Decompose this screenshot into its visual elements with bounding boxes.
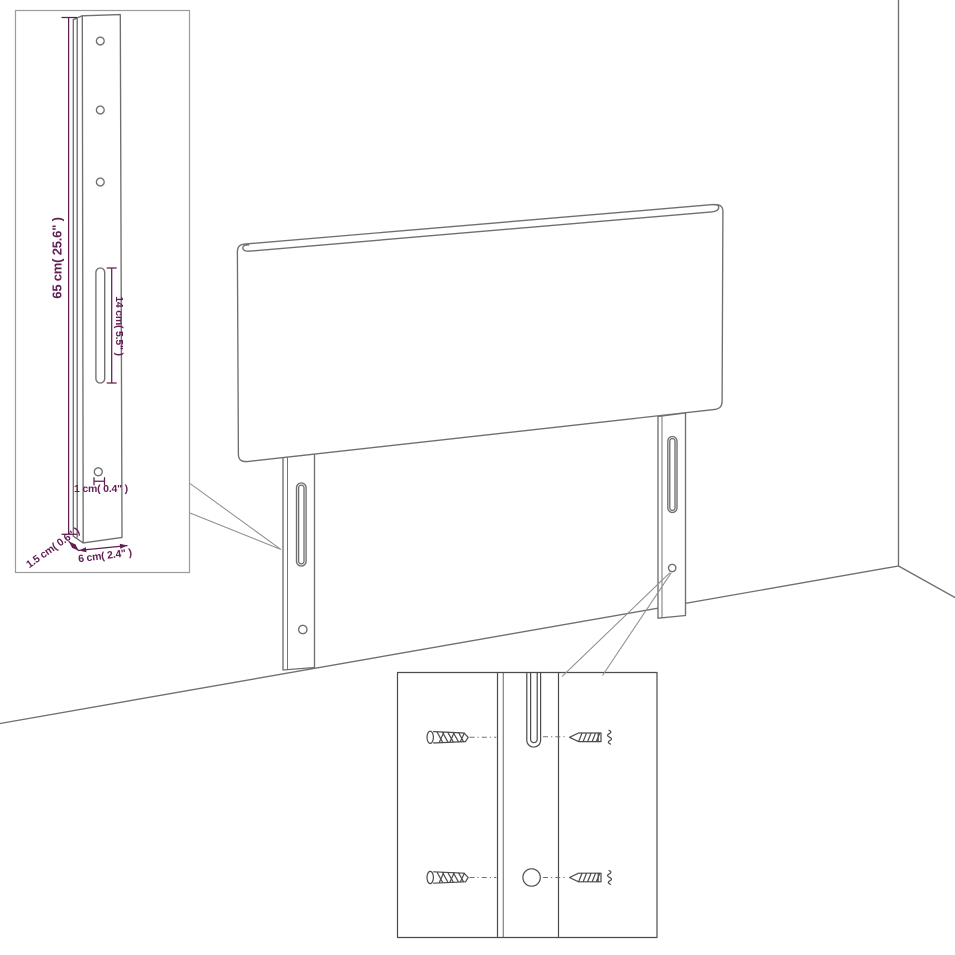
headboard-dimension-diagram: 65 cm( 25.6" ) 14 cm( 5.5" ) 1 cm( 0.4" … xyxy=(0,0,955,955)
slot-length-label: 14 cm( 5.5" ) xyxy=(113,296,125,356)
slot-closeup xyxy=(527,673,541,748)
alignment-dash-lines xyxy=(470,737,567,878)
headboard-left-leg xyxy=(283,454,315,670)
hole-diameter-label: 1 cm( 0.4" ) xyxy=(74,483,128,495)
post-height-label: 65 cm( 25.6" ) xyxy=(50,217,65,298)
diagram-drawing xyxy=(0,0,955,955)
hole-closeup xyxy=(523,869,540,886)
hardware-detail-inset xyxy=(398,673,658,938)
headboard-panel xyxy=(237,205,723,462)
headboard-right-leg xyxy=(658,413,686,618)
leg-strip-closeup xyxy=(498,673,559,938)
